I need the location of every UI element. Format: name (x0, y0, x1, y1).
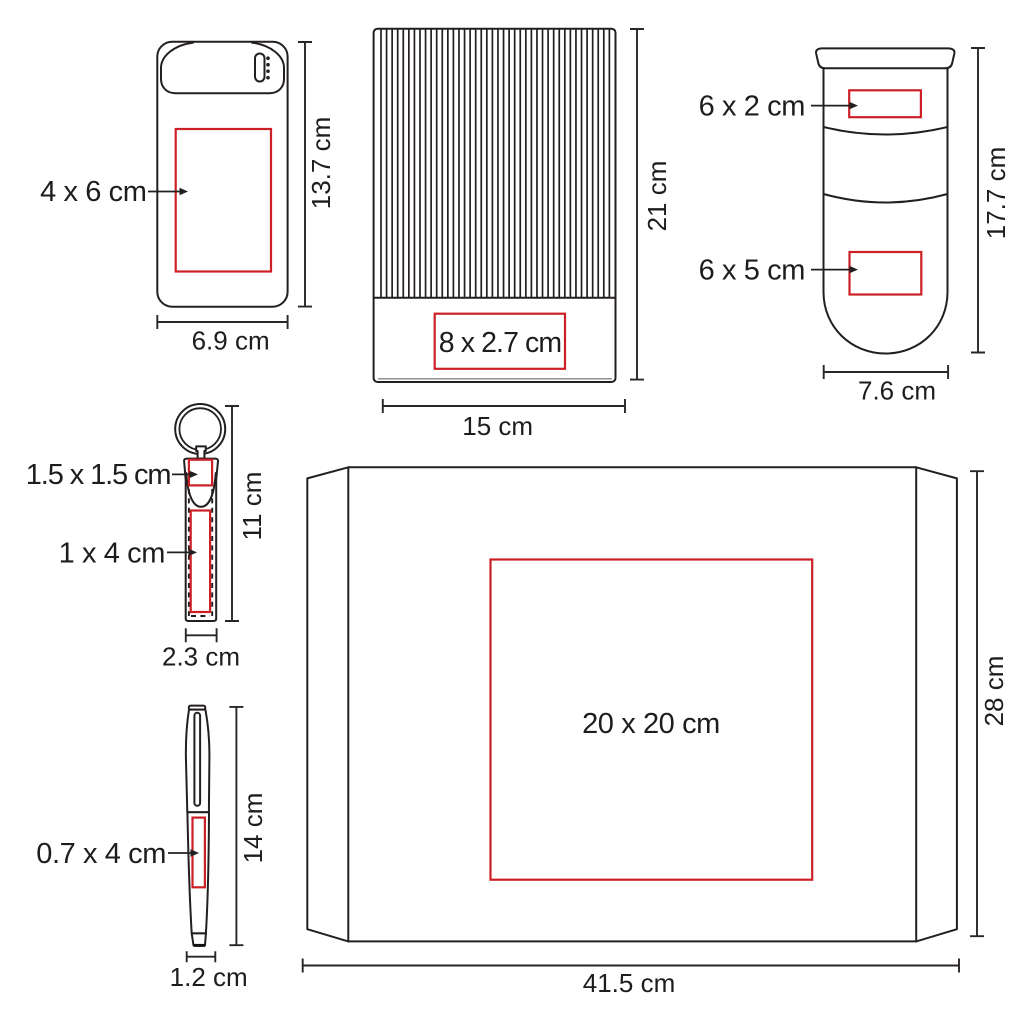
svg-text:20 x 20 cm: 20 x 20 cm (582, 708, 720, 740)
svg-text:0.7 x 4 cm: 0.7 x 4 cm (36, 838, 166, 870)
svg-text:7.6 cm: 7.6 cm (858, 376, 936, 406)
svg-text:1 x 4 cm: 1 x 4 cm (59, 538, 165, 570)
svg-text:1.5 x 1.5 cm: 1.5 x 1.5 cm (26, 459, 171, 491)
svg-text:6 x 2 cm: 6 x 2 cm (699, 91, 805, 123)
svg-text:17.7 cm: 17.7 cm (981, 147, 1011, 240)
svg-text:15 cm: 15 cm (462, 411, 533, 441)
svg-text:6.9 cm: 6.9 cm (192, 326, 270, 356)
svg-text:2.3 cm: 2.3 cm (162, 642, 240, 672)
svg-text:21 cm: 21 cm (642, 161, 672, 232)
svg-text:13.7 cm: 13.7 cm (306, 117, 336, 210)
svg-text:11 cm: 11 cm (237, 472, 267, 541)
svg-text:4 x 6 cm: 4 x 6 cm (40, 176, 146, 208)
svg-text:41.5 cm: 41.5 cm (583, 968, 676, 998)
svg-text:6 x 5 cm: 6 x 5 cm (699, 255, 805, 287)
svg-text:8 x 2.7 cm: 8 x 2.7 cm (439, 327, 561, 359)
svg-text:1.2 cm: 1.2 cm (170, 962, 248, 992)
svg-text:14 cm: 14 cm (238, 793, 268, 864)
svg-text:28 cm: 28 cm (979, 656, 1009, 727)
